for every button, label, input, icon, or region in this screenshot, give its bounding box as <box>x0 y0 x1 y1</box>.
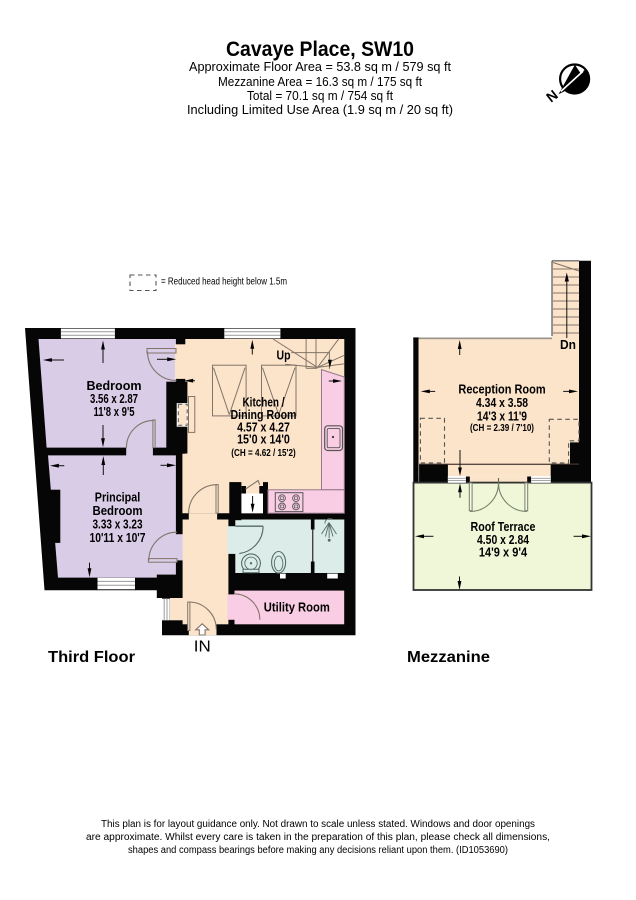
svg-text:(CH = 4.62 / 15'2): (CH = 4.62 / 15'2) <box>231 448 295 459</box>
svg-text:are approximate. Whilst every: are approximate. Whilst every care is ta… <box>86 832 550 843</box>
svg-text:14'9 x 9'4: 14'9 x 9'4 <box>479 545 528 560</box>
svg-text:IN: IN <box>194 639 211 656</box>
svg-text:15'0 x 14'0: 15'0 x 14'0 <box>237 432 290 447</box>
svg-text:shapes and compass bearings be: shapes and compass bearings before makin… <box>128 845 508 856</box>
svg-text:Approximate Floor Area = 53.8: Approximate Floor Area = 53.8 sq m / 579… <box>189 59 451 74</box>
svg-text:Utility Room: Utility Room <box>264 600 330 615</box>
svg-text:11'8 x 9'5: 11'8 x 9'5 <box>94 404 135 419</box>
svg-text:10'11 x 10'7: 10'11 x 10'7 <box>90 530 146 545</box>
svg-text:Up: Up <box>277 347 291 362</box>
svg-text:Third Floor: Third Floor <box>48 649 135 666</box>
svg-text:Including Limited Use Area (1.: Including Limited Use Area (1.9 sq m / 2… <box>187 102 453 117</box>
svg-text:Cavaye Place, SW10: Cavaye Place, SW10 <box>226 38 414 61</box>
svg-text:Mezzanine: Mezzanine <box>407 649 490 666</box>
svg-text:= Reduced head height below 1.: = Reduced head height below 1.5m <box>161 277 287 288</box>
svg-text:14'3 x 11'9: 14'3 x 11'9 <box>477 409 527 424</box>
svg-text:This plan is for layout guidan: This plan is for layout guidance only. N… <box>101 819 535 830</box>
svg-text:(CH = 2.39 / 7'10): (CH = 2.39 / 7'10) <box>470 423 534 434</box>
svg-text:Dn: Dn <box>560 337 576 352</box>
svg-text:Mezzanine Area = 16.3 sq m / 1: Mezzanine Area = 16.3 sq m / 175 sq ft <box>218 74 422 89</box>
